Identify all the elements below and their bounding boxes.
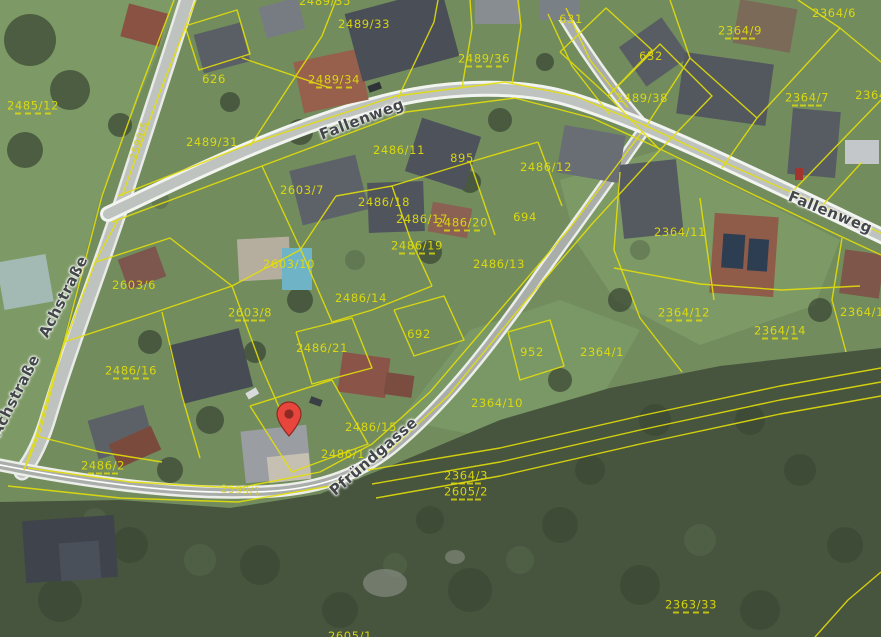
aerial-imagery [0, 0, 881, 637]
location-marker[interactable] [276, 401, 302, 437]
map-pin-icon [276, 401, 302, 437]
map-canvas[interactable]: 2485/126262489/352489/332489/312489/3424… [0, 0, 881, 637]
